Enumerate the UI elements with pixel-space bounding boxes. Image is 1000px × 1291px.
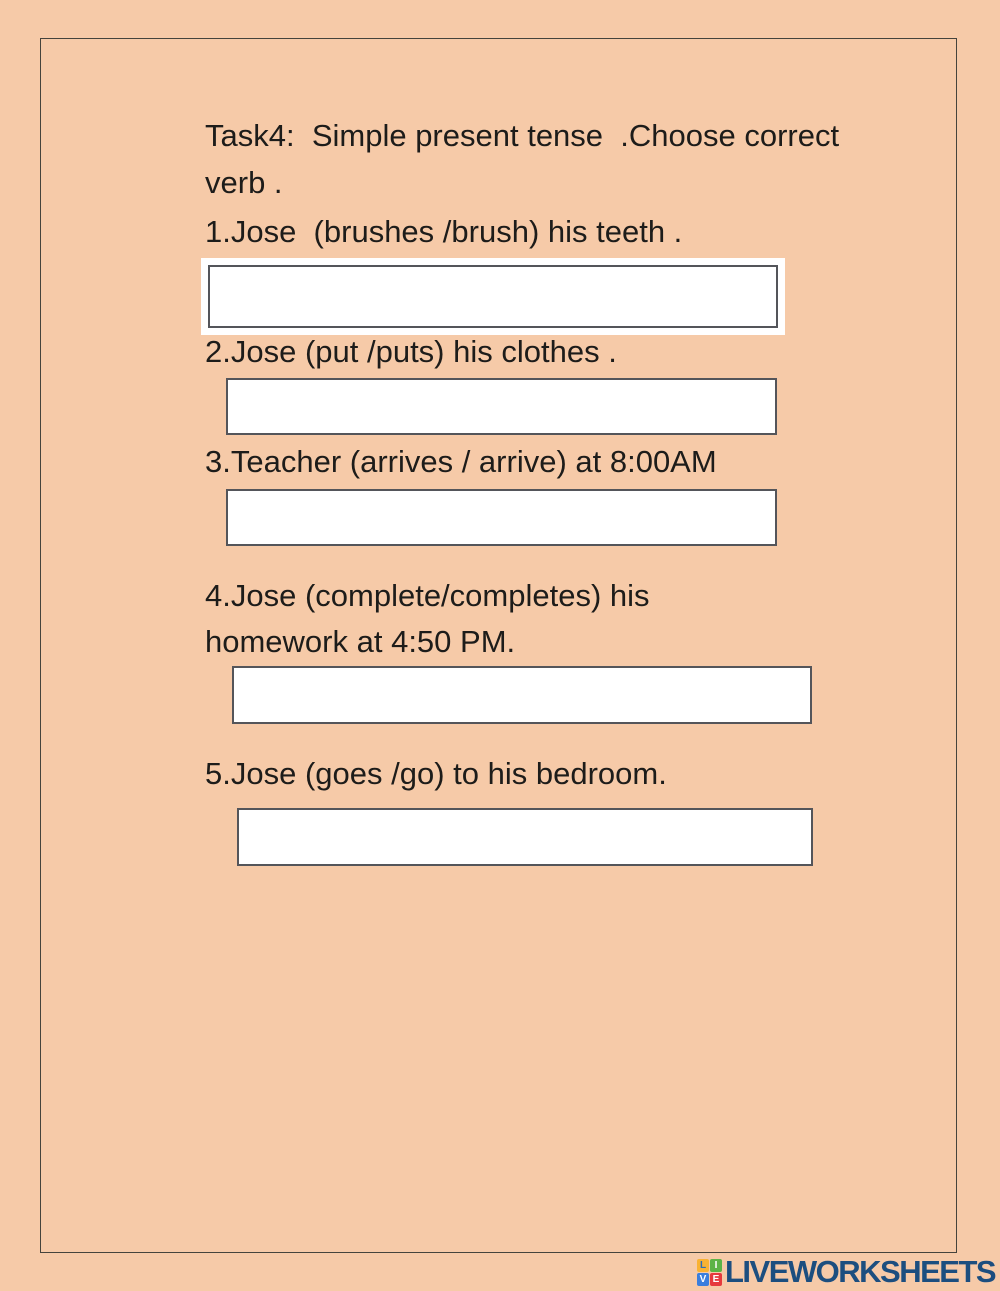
worksheet-page: Task4: Simple present tense .Choose corr… — [0, 0, 1000, 1291]
liveworksheets-logo-icon: L I V E — [697, 1259, 722, 1286]
liveworksheets-logo[interactable]: L I V E LIVEWORKSHEETS — [697, 1254, 995, 1290]
question-1-text: 1.Jose (brushes /brush) his teeth . — [205, 214, 682, 250]
liveworksheets-logo-text: LIVEWORKSHEETS — [725, 1254, 995, 1290]
answer-input-5[interactable] — [237, 808, 813, 866]
task-title-line1: Task4: Simple present tense .Choose corr… — [205, 118, 839, 154]
question-3-text: 3.Teacher (arrives / arrive) at 8:00AM — [205, 444, 717, 480]
logo-tile-i: I — [710, 1259, 722, 1272]
task-title-line2: verb . — [205, 165, 283, 201]
logo-tile-v: V — [697, 1273, 709, 1286]
question-4-text-line2: homework at 4:50 PM. — [205, 624, 515, 660]
question-5-text: 5.Jose (goes /go) to his bedroom. — [205, 756, 667, 792]
logo-tile-e: E — [710, 1273, 722, 1286]
answer-input-2[interactable] — [226, 378, 777, 435]
question-4-text-line1: 4.Jose (complete/completes) his — [205, 578, 650, 614]
question-2-text: 2.Jose (put /puts) his clothes . — [205, 334, 617, 370]
answer-box-1-halo — [201, 258, 785, 335]
answer-input-3[interactable] — [226, 489, 777, 546]
answer-input-4[interactable] — [232, 666, 812, 724]
logo-tile-l: L — [697, 1259, 709, 1272]
answer-input-1[interactable] — [208, 265, 778, 328]
